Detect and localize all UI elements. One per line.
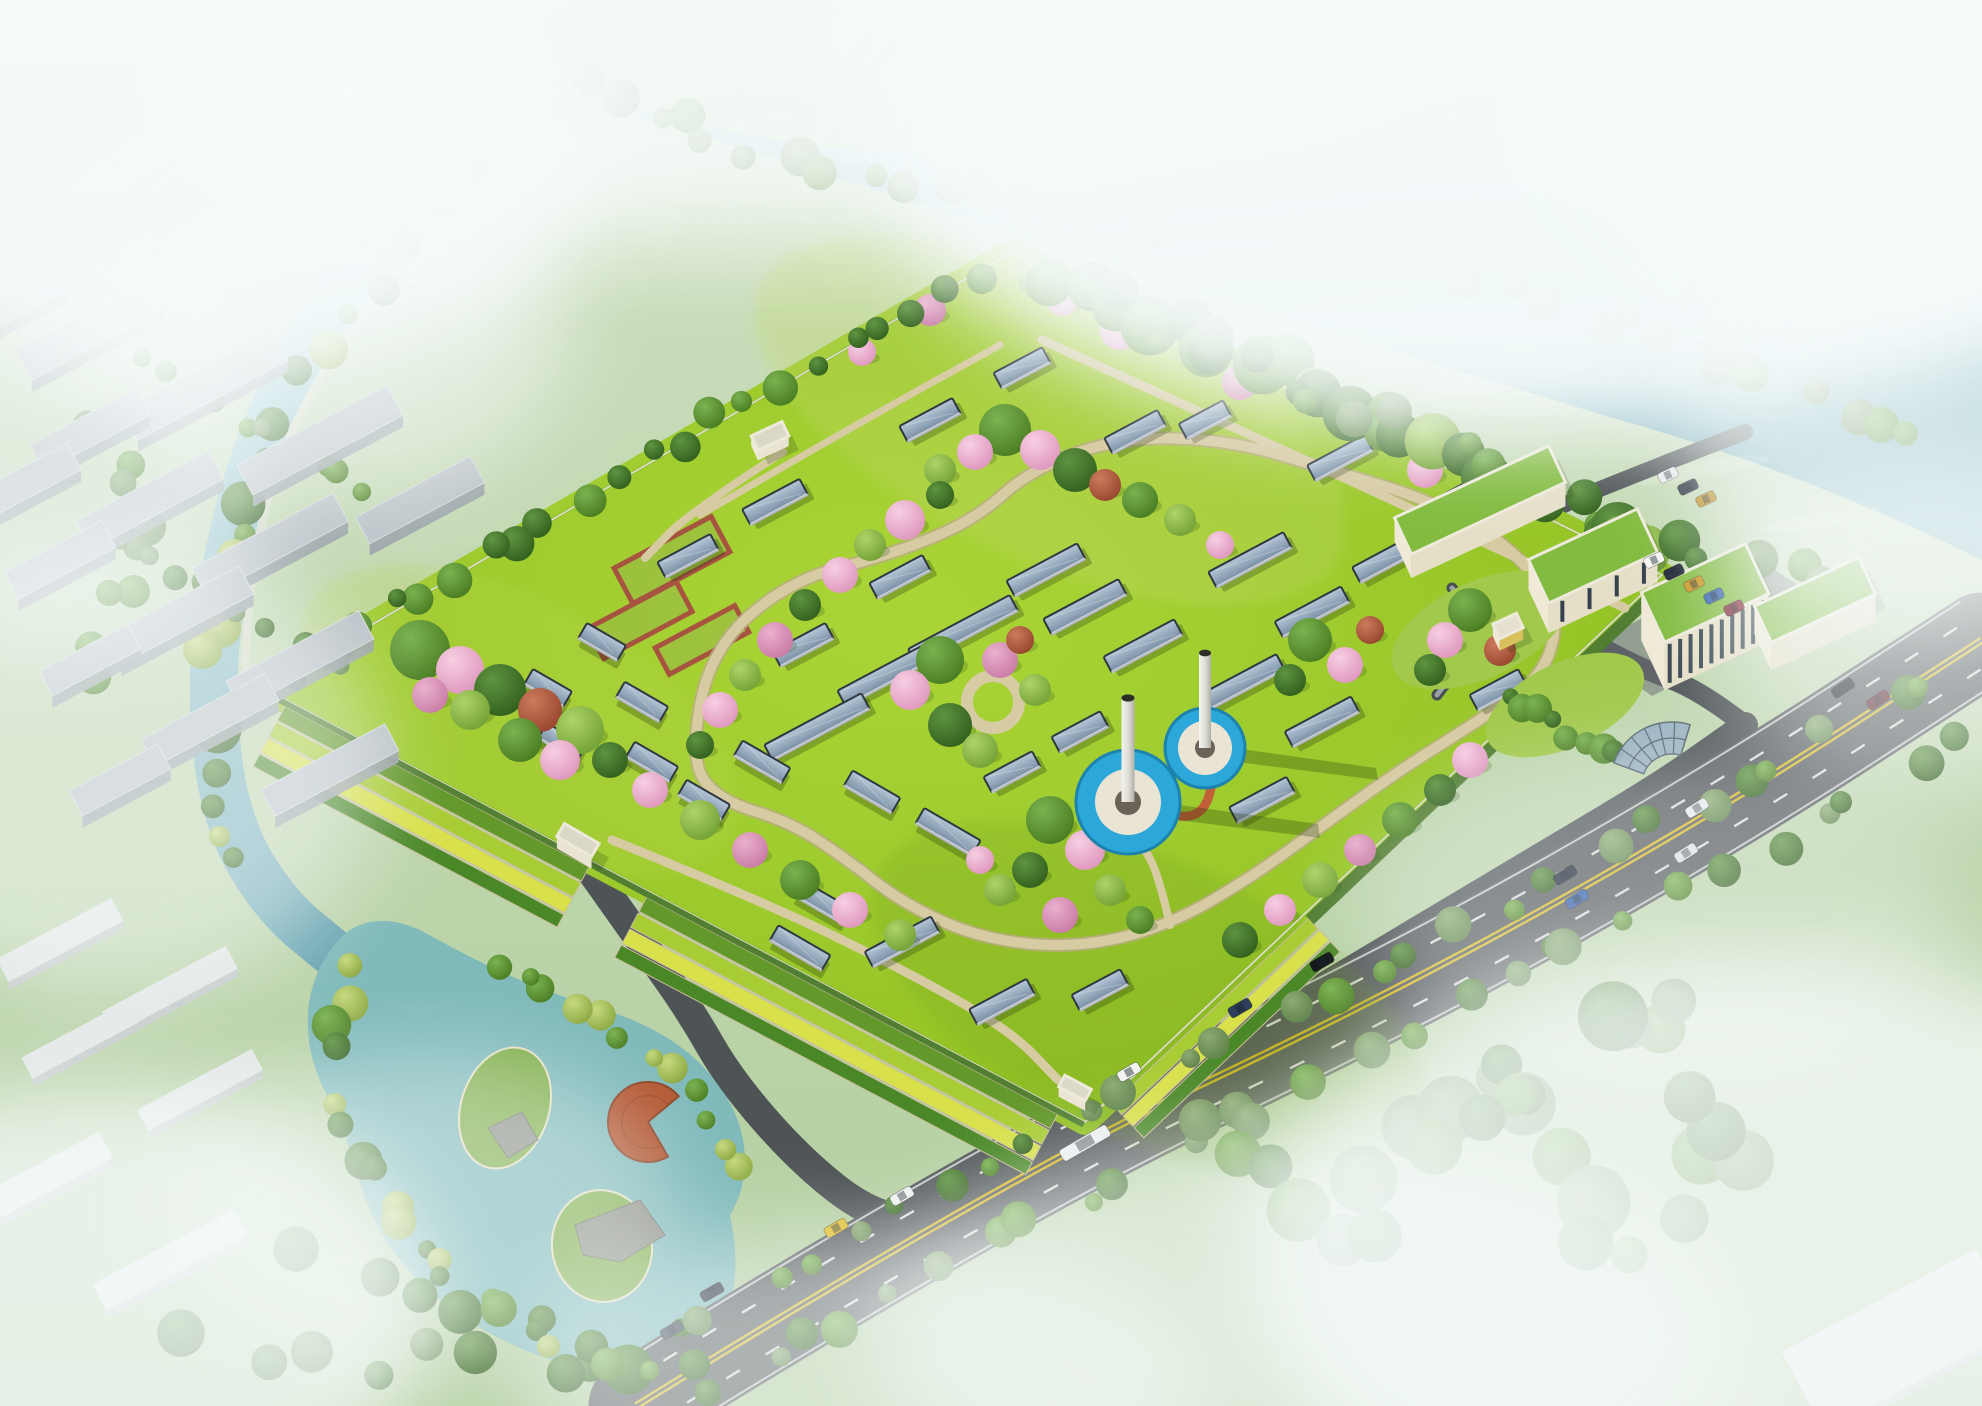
tree	[412, 677, 448, 713]
tree	[732, 832, 768, 868]
tree	[1288, 618, 1332, 662]
fog-patch	[160, 1050, 680, 1370]
tree	[1181, 1049, 1200, 1068]
scene-root	[0, 0, 1982, 1406]
tree	[632, 772, 668, 808]
vent-tower	[1122, 698, 1135, 802]
tree	[763, 370, 798, 405]
tree	[1042, 897, 1078, 933]
tree	[966, 846, 994, 874]
tree	[1544, 711, 1561, 728]
tree	[1327, 647, 1363, 683]
tree	[1427, 622, 1463, 658]
tree	[574, 484, 607, 517]
tree	[884, 919, 916, 951]
tree	[606, 1027, 628, 1049]
tree	[402, 583, 433, 614]
tree	[1274, 664, 1306, 696]
tree	[670, 432, 701, 463]
fog-patch	[90, 160, 570, 500]
tree	[337, 953, 362, 978]
tree	[822, 557, 858, 593]
tree	[1094, 874, 1126, 906]
tree	[1164, 504, 1196, 536]
tree	[1019, 674, 1051, 706]
tree	[1452, 742, 1488, 778]
tree	[1206, 531, 1234, 559]
tree	[936, 1169, 968, 1201]
tree	[1553, 725, 1578, 750]
tree	[832, 892, 868, 928]
tree	[981, 1158, 999, 1176]
tree	[1012, 852, 1048, 888]
tree	[680, 800, 720, 840]
aerial-rendering-canvas	[0, 0, 1982, 1406]
tower-top	[1199, 650, 1211, 657]
tree	[1356, 616, 1384, 644]
tree	[1281, 991, 1313, 1023]
tree	[957, 434, 993, 470]
tree	[522, 968, 540, 986]
tree	[1089, 469, 1121, 501]
tree	[644, 439, 664, 459]
tree	[487, 955, 512, 980]
tree	[715, 1139, 736, 1160]
tree	[1414, 654, 1446, 686]
tower-top	[1122, 694, 1135, 701]
tree	[450, 690, 490, 730]
tree	[1026, 796, 1074, 844]
tree	[731, 391, 752, 412]
tree	[1100, 1074, 1136, 1110]
tree	[592, 742, 628, 778]
tree	[645, 1049, 663, 1067]
tree	[757, 622, 793, 658]
tree	[1302, 862, 1338, 898]
tree	[693, 397, 725, 429]
tree	[697, 1111, 716, 1130]
tree	[926, 481, 954, 509]
tree	[789, 589, 821, 621]
tree	[848, 327, 869, 348]
tree	[885, 500, 925, 540]
tree	[686, 731, 714, 759]
tree	[780, 860, 820, 900]
tree	[323, 1032, 351, 1060]
tree	[685, 1079, 708, 1102]
tree	[890, 670, 930, 710]
tree	[437, 563, 473, 599]
tree	[540, 740, 580, 780]
tree	[729, 659, 761, 691]
tree	[1013, 1134, 1033, 1154]
tree	[483, 531, 510, 558]
tree	[809, 356, 828, 375]
tree	[1198, 1027, 1230, 1059]
tree	[388, 589, 406, 607]
tree	[563, 994, 593, 1024]
tree	[1264, 894, 1296, 926]
tree	[607, 465, 631, 489]
tree	[702, 692, 738, 728]
tree	[1126, 906, 1154, 934]
aerial-rendering	[0, 0, 1982, 1406]
tree	[854, 529, 886, 561]
tree	[498, 718, 542, 762]
tree	[1122, 482, 1158, 518]
tree	[962, 732, 998, 768]
tree	[984, 874, 1016, 906]
fog-patch	[1360, 750, 1960, 1070]
tree	[1006, 626, 1034, 654]
tree	[1222, 922, 1258, 958]
vent-tower	[1199, 653, 1211, 748]
tree	[1318, 978, 1354, 1014]
tree	[1344, 834, 1376, 866]
